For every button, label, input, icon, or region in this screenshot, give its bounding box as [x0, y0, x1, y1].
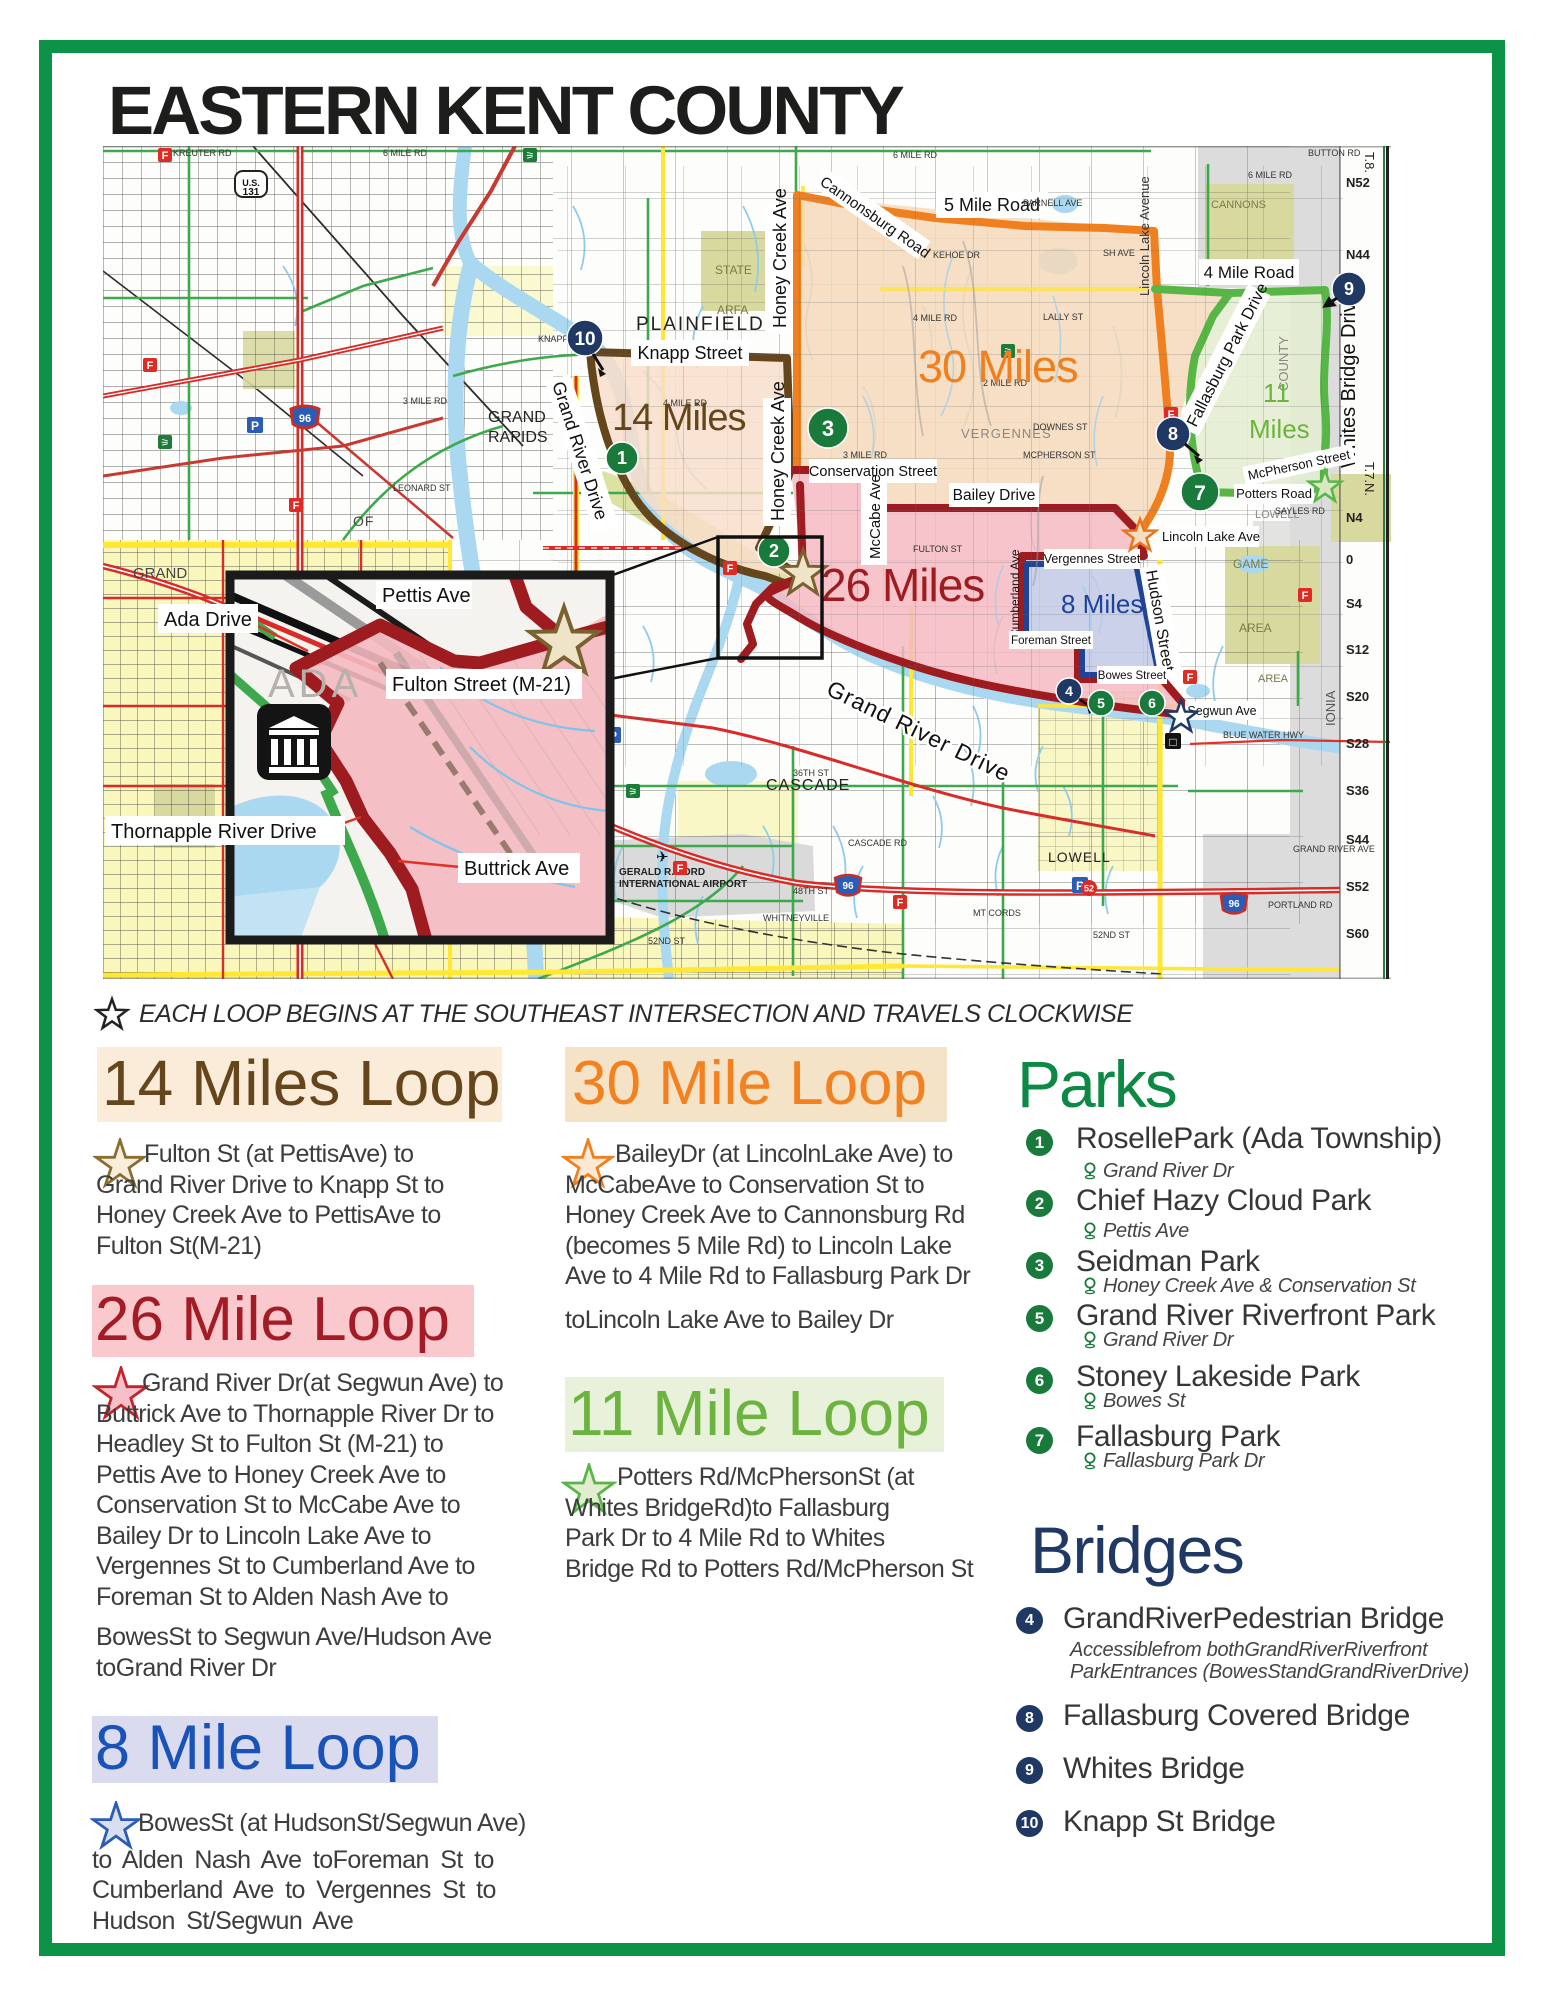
svg-text:INTERNATIONAL AIRPORT: INTERNATIONAL AIRPORT [619, 879, 747, 890]
svg-text:Cumberland Ave: Cumberland Ave [1008, 549, 1022, 638]
svg-text:T.7.N.: T.7.N. [1362, 462, 1377, 496]
svg-text:N52: N52 [1346, 175, 1370, 190]
svg-text:30 Miles: 30 Miles [918, 341, 1078, 392]
svg-text:S36: S36 [1346, 783, 1369, 798]
svg-text:131: 131 [243, 187, 260, 198]
svg-text:9: 9 [1344, 279, 1354, 299]
svg-text:Fulton Street (M-21): Fulton Street (M-21) [392, 674, 571, 696]
svg-text:BLUE WATER HWY: BLUE WATER HWY [1223, 730, 1304, 740]
svg-text:3: 3 [822, 416, 834, 441]
svg-text:Honey Creek Ave: Honey Creek Ave [768, 381, 788, 521]
svg-text:GRAND: GRAND [488, 409, 546, 426]
svg-text:DOWNES ST: DOWNES ST [1033, 422, 1088, 432]
svg-text:KEHOE DR: KEHOE DR [933, 250, 981, 260]
svg-text:2: 2 [769, 541, 779, 561]
svg-text:1: 1 [617, 448, 627, 468]
svg-text:KREUTER RD: KREUTER RD [173, 148, 232, 158]
svg-text:Lincoln Lake Avenue: Lincoln Lake Avenue [1137, 176, 1152, 296]
svg-text:Honey Creek Ave: Honey Creek Ave [770, 188, 790, 328]
svg-text:3 MILE RD: 3 MILE RD [843, 450, 888, 460]
svg-text:MT CORDS: MT CORDS [973, 908, 1021, 918]
svg-text:GERALD R. FORD: GERALD R. FORD [619, 867, 705, 878]
svg-text:P: P [251, 419, 259, 433]
svg-text:CASCADE RD: CASCADE RD [848, 838, 908, 848]
svg-text:96: 96 [1228, 899, 1240, 910]
svg-text:F: F [1302, 590, 1309, 602]
svg-text:14 Miles: 14 Miles [612, 397, 746, 439]
svg-text:26 Miles: 26 Miles [821, 559, 984, 611]
svg-text:F: F [897, 897, 904, 909]
svg-text:F: F [677, 863, 684, 875]
svg-text:S28: S28 [1346, 736, 1369, 751]
svg-text:OF: OF [353, 513, 374, 529]
svg-text:52: 52 [1084, 884, 1094, 894]
svg-text:F: F [727, 563, 734, 575]
svg-text:McCabe Ave: McCabe Ave [867, 474, 884, 559]
svg-text:LEONARD ST: LEONARD ST [393, 483, 451, 493]
svg-text:Buttrick Ave: Buttrick Ave [464, 858, 569, 880]
svg-text:IONIA: IONIA [1323, 690, 1338, 726]
svg-text:F: F [293, 500, 300, 512]
svg-text:6 MILE RD: 6 MILE RD [893, 150, 938, 160]
svg-text:PLAINFIELD: PLAINFIELD [636, 314, 765, 335]
svg-text:F: F [162, 150, 169, 162]
svg-text:S60: S60 [1346, 926, 1369, 941]
svg-text:⚞: ⚞ [629, 787, 638, 798]
svg-text:⚞: ⚞ [161, 438, 170, 449]
svg-text:ARFA: ARFA [717, 303, 748, 317]
svg-text:S52: S52 [1346, 879, 1369, 894]
svg-text:PORTLAND RD: PORTLAND RD [1268, 900, 1333, 910]
svg-text:96: 96 [299, 413, 311, 425]
svg-text:CASCADE: CASCADE [766, 777, 850, 794]
svg-text:S4: S4 [1346, 596, 1363, 611]
svg-text:Bailey Drive: Bailey Drive [953, 487, 1036, 504]
svg-text:5: 5 [1097, 695, 1105, 711]
svg-text:F: F [147, 360, 154, 372]
svg-text:0: 0 [1346, 552, 1353, 567]
svg-text:Lincoln Lake Ave: Lincoln Lake Ave [1162, 529, 1260, 544]
svg-text:Pettis Ave: Pettis Ave [382, 585, 471, 607]
svg-text:AREA: AREA [1258, 673, 1289, 685]
svg-text:MCPHERSON ST: MCPHERSON ST [1023, 450, 1096, 460]
svg-text:F: F [1187, 672, 1194, 684]
svg-text:BUTTON RD: BUTTON RD [1308, 148, 1361, 158]
svg-text:PARNELL AVE: PARNELL AVE [1023, 198, 1082, 208]
svg-text:8: 8 [1168, 424, 1178, 444]
svg-text:8 Miles: 8 Miles [1061, 589, 1143, 619]
svg-text:52ND ST: 52ND ST [648, 936, 686, 946]
svg-text:96: 96 [842, 881, 854, 892]
svg-text:6 MILE RD: 6 MILE RD [383, 148, 428, 158]
svg-text:RAPIDS: RAPIDS [488, 429, 548, 446]
svg-text:11: 11 [1263, 378, 1290, 408]
svg-text:Vergennes Street: Vergennes Street [1044, 552, 1141, 566]
svg-text:4 Mile Road: 4 Mile Road [1204, 263, 1295, 282]
svg-text:T.8.: T.8. [1362, 152, 1377, 173]
svg-text:S12: S12 [1346, 642, 1369, 657]
svg-text:SAYLES RD: SAYLES RD [1275, 506, 1325, 516]
svg-text:6: 6 [1148, 695, 1156, 711]
svg-text:GAME: GAME [1233, 557, 1268, 571]
svg-text:Miles: Miles [1249, 414, 1310, 444]
svg-text:□: □ [1169, 735, 1176, 749]
svg-text:STATE: STATE [715, 263, 752, 277]
svg-text:4 MILE RD: 4 MILE RD [913, 313, 958, 323]
svg-text:GRAND RIVER AVE: GRAND RIVER AVE [1293, 844, 1375, 854]
svg-text:N4: N4 [1346, 510, 1363, 525]
svg-text:LALLY ST: LALLY ST [1043, 312, 1084, 322]
svg-text:GRAND: GRAND [133, 565, 187, 582]
svg-text:Thornapple River Drive: Thornapple River Drive [111, 821, 317, 843]
svg-text:FULTON ST: FULTON ST [913, 544, 963, 554]
svg-text:52ND ST: 52ND ST [1093, 930, 1131, 940]
svg-text:Whites Bridge Drive: Whites Bridge Drive [1338, 291, 1360, 468]
svg-text:AREA: AREA [1239, 621, 1272, 635]
svg-text:Bowes Street: Bowes Street [1098, 670, 1167, 682]
svg-text:Potters Road: Potters Road [1236, 486, 1312, 501]
svg-text:ADA: ADA [268, 662, 362, 706]
svg-text:S20: S20 [1346, 689, 1369, 704]
svg-text:48TH ST: 48TH ST [793, 886, 830, 896]
svg-text:7: 7 [1194, 482, 1206, 505]
svg-text:⚞: ⚞ [526, 151, 535, 162]
svg-text:Ada Drive: Ada Drive [164, 609, 252, 631]
svg-text:LOWELL: LOWELL [1048, 849, 1111, 865]
svg-text:CANNONS: CANNONS [1211, 199, 1266, 211]
svg-text:Knapp Street: Knapp Street [637, 343, 742, 363]
svg-text:Foreman Street: Foreman Street [1011, 635, 1092, 647]
svg-text:N44: N44 [1346, 247, 1371, 262]
svg-text:✈: ✈ [656, 849, 669, 866]
svg-text:WHITNEYVILLE: WHITNEYVILLE [763, 913, 829, 923]
svg-text:36TH ST: 36TH ST [793, 768, 830, 778]
svg-text:10: 10 [574, 329, 595, 350]
svg-text:6 MILE RD: 6 MILE RD [1248, 170, 1293, 180]
svg-text:4: 4 [1065, 683, 1073, 699]
svg-text:SH AVE: SH AVE [1103, 248, 1135, 258]
svg-text:3 MILE RD: 3 MILE RD [403, 396, 448, 406]
